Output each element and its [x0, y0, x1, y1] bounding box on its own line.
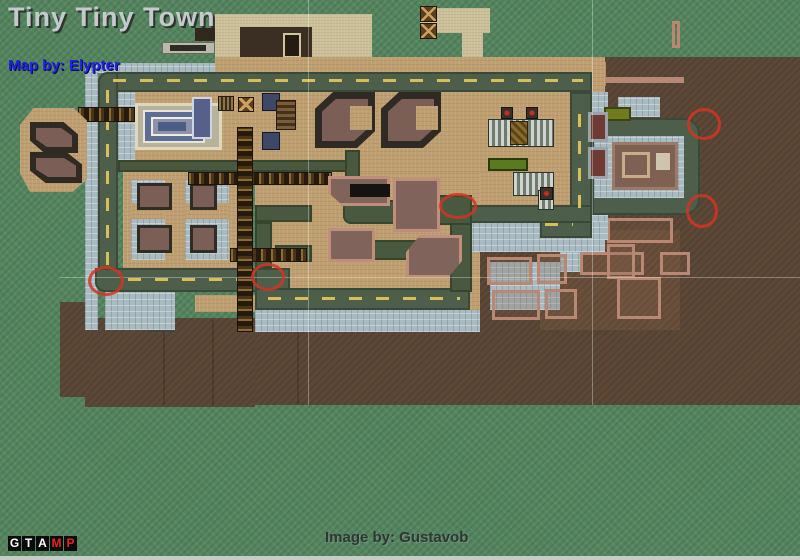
loading-bay-slot	[170, 45, 206, 51]
striped-shed	[276, 100, 296, 130]
pier-island-bridge	[78, 107, 135, 122]
wall-outline	[607, 218, 673, 243]
dumpster-green	[488, 158, 528, 171]
sidewalk-south	[255, 310, 480, 332]
map-credit: Map by: Elypter	[8, 57, 120, 74]
vent-box	[501, 107, 513, 119]
map-title: Tiny Tiny Town	[8, 2, 216, 33]
wall-outline	[660, 252, 690, 275]
east-building	[588, 147, 608, 179]
loop-building-frame	[622, 152, 650, 178]
sidewalk-southwest-corner	[105, 292, 175, 330]
logo-letter: P	[64, 536, 77, 551]
red-circle-marker	[439, 193, 477, 219]
red-circle-marker	[251, 263, 285, 291]
building-door	[283, 33, 301, 58]
east-building	[588, 112, 608, 142]
blue-roof-shed	[262, 132, 280, 150]
crate	[238, 97, 254, 112]
district-building	[190, 225, 217, 253]
logo-letter: T	[22, 536, 35, 551]
wall-outline	[607, 244, 635, 279]
wall-outline	[537, 254, 567, 284]
image-bottom-border	[0, 556, 800, 560]
pier-horizontal-upper	[188, 172, 332, 185]
logo-letter: A	[36, 536, 49, 551]
logo-letter: G	[8, 536, 21, 551]
wall-outline	[672, 21, 680, 48]
sand-structure-crates-leg	[462, 28, 483, 60]
channel-s-top	[255, 205, 312, 222]
gridline-horizontal	[60, 277, 800, 278]
road-dashes	[545, 223, 573, 226]
plaza-top-strip	[215, 57, 592, 73]
gtamp-logo: GTAMP	[8, 536, 77, 551]
gridline-vertical	[592, 0, 593, 405]
road-north	[98, 72, 592, 92]
dirt-seam	[297, 332, 299, 405]
wall-outline	[487, 257, 532, 285]
red-circle-marker	[687, 108, 721, 140]
arena-slab	[192, 97, 212, 139]
striped-stall	[218, 96, 234, 111]
road-dashes	[578, 100, 581, 208]
image-credit: Image by: Gustavob	[325, 529, 468, 546]
wall-outline	[545, 289, 577, 319]
crate	[420, 6, 437, 22]
market-gold-stand	[510, 121, 528, 145]
black-rooftop	[350, 184, 390, 197]
district-building	[137, 225, 172, 253]
road-dashes	[268, 297, 460, 300]
dirt-seam	[212, 320, 214, 405]
dirt-seam	[163, 320, 165, 405]
olive-shed	[604, 107, 631, 121]
red-circle-marker	[88, 266, 124, 296]
district-building	[137, 183, 172, 210]
road-dashes	[113, 79, 583, 82]
arena-core	[158, 122, 186, 131]
vent-box	[526, 107, 538, 119]
map-image: Tiny Tiny Town Map by: Elypter Image by:…	[0, 0, 800, 560]
wall-outline	[604, 77, 684, 83]
loop-building-block	[656, 153, 670, 170]
pier-vertical	[237, 127, 253, 332]
gridline-vertical	[308, 0, 309, 405]
wall-outline	[492, 290, 540, 320]
center-building	[328, 228, 375, 262]
crate	[420, 23, 437, 39]
hex-courtyard	[350, 106, 372, 130]
dirt-area-south-center	[255, 330, 480, 405]
wall-outline	[617, 277, 661, 319]
district-building	[190, 183, 217, 210]
center-building	[393, 178, 440, 232]
road-dashes	[128, 278, 253, 281]
logo-letter: M	[50, 536, 63, 551]
red-circle-marker	[686, 194, 718, 228]
hex-courtyard	[416, 106, 438, 130]
vent-box	[540, 187, 553, 200]
